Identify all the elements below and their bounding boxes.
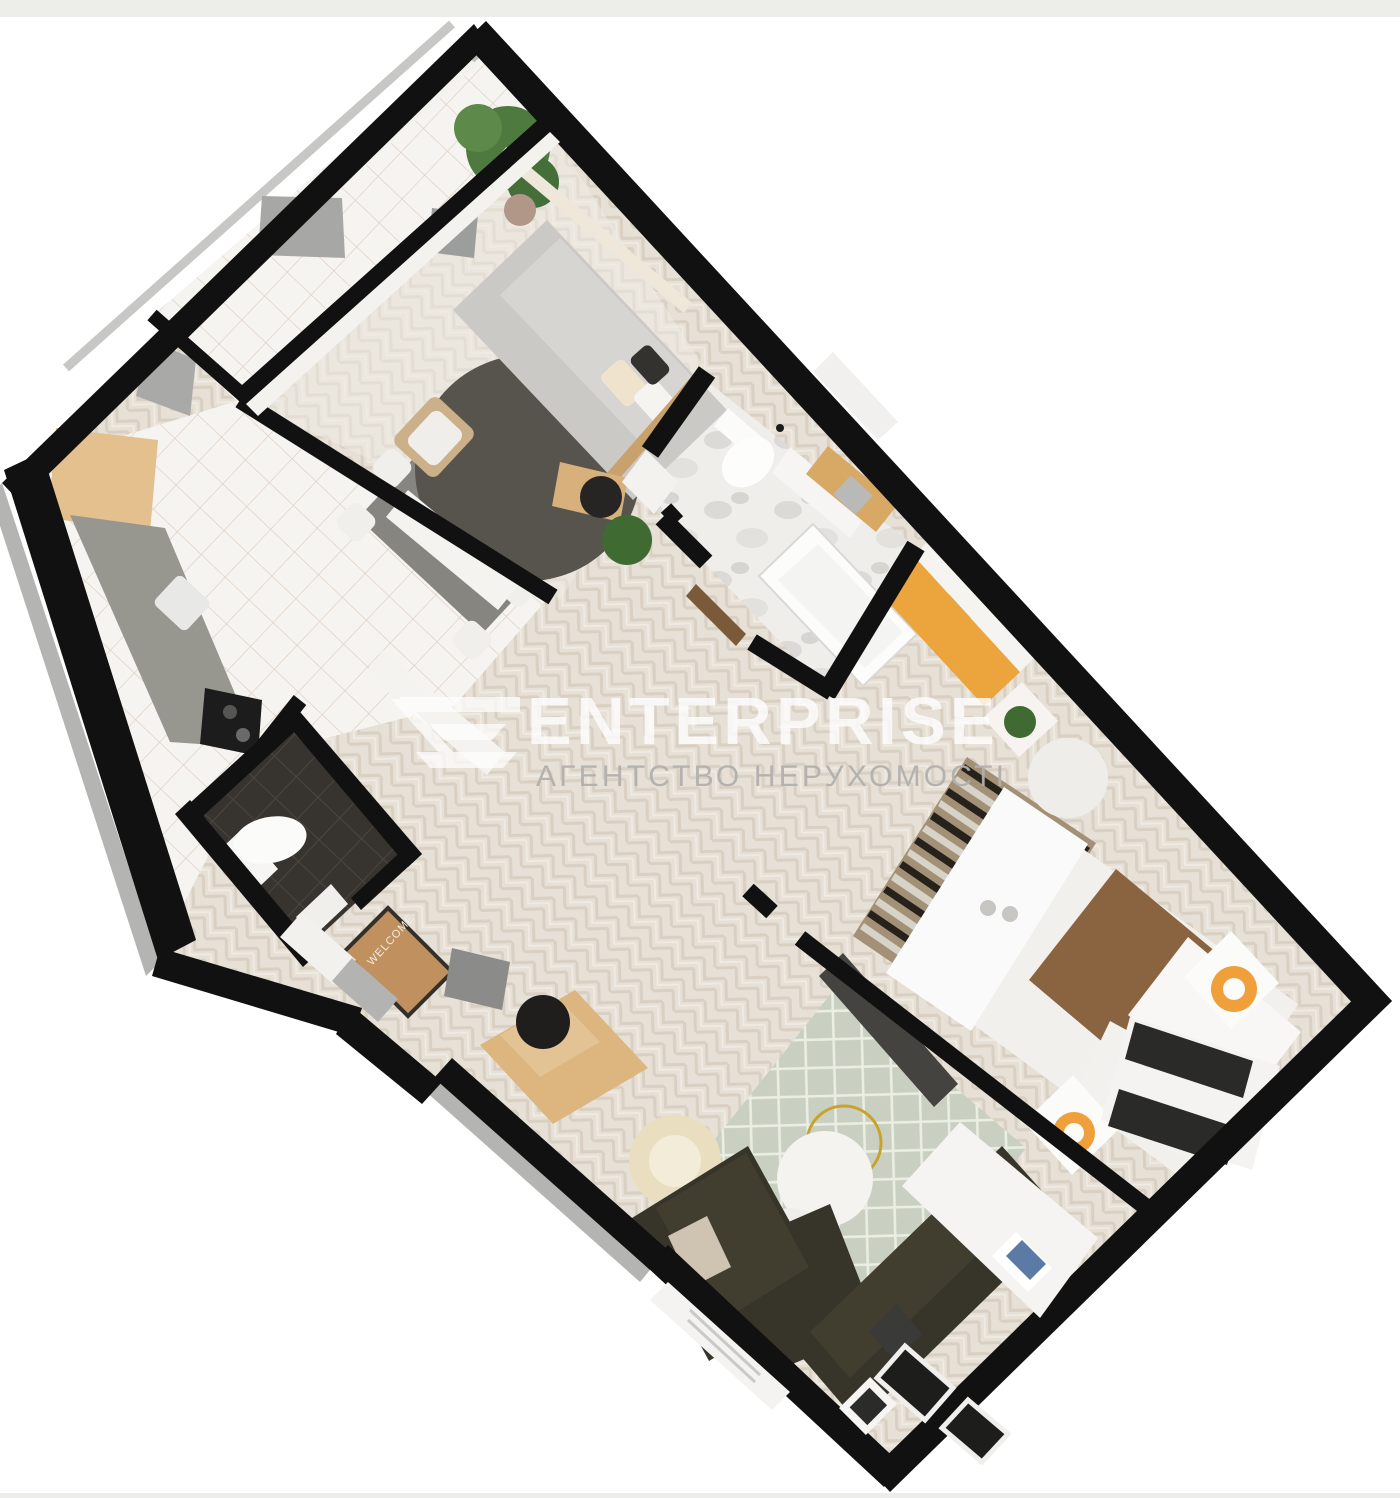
svg-text:ENTERPRISE: ENTERPRISE — [527, 684, 999, 759]
svg-text:АГЕНТСТВО НЕРУХОМОСТІ: АГЕНТСТВО НЕРУХОМОСТІ — [536, 760, 1007, 793]
